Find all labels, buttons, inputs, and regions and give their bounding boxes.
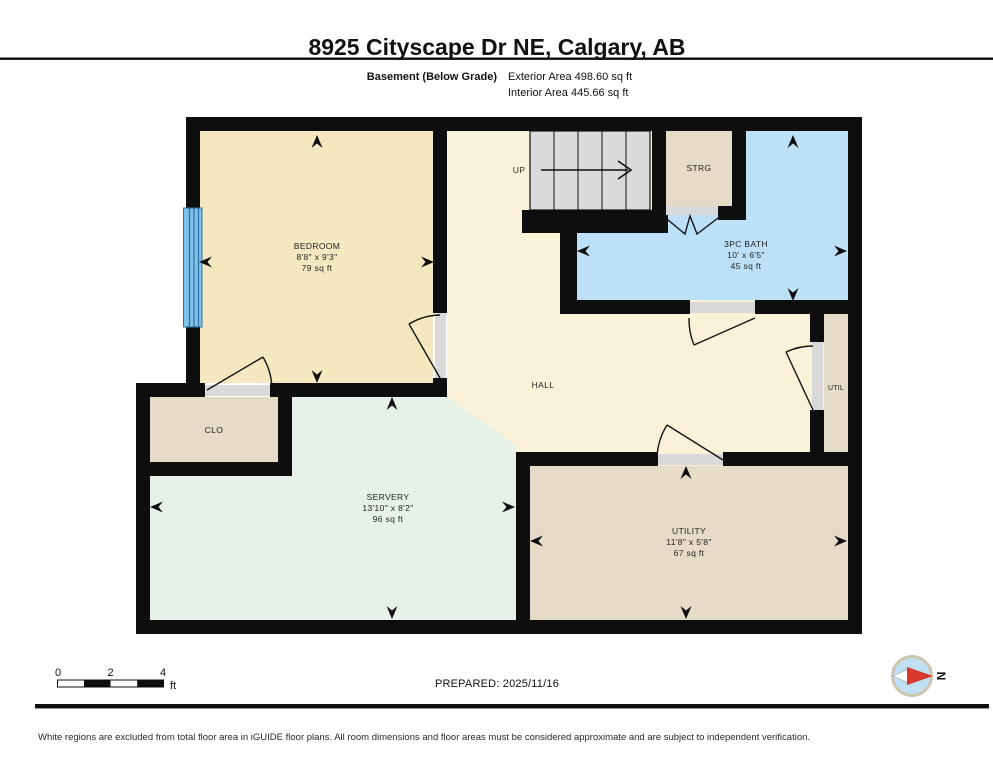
servery-name: SERVERY: [367, 492, 410, 502]
bedroom-area: 79 sq ft: [302, 263, 333, 273]
bath-area: 45 sq ft: [731, 261, 762, 271]
interior-area: Interior Area 445.66 sq ft: [508, 87, 628, 99]
footer-divider: [35, 704, 989, 708]
stairs-up-label: UP: [513, 165, 526, 175]
compass-icon: N: [893, 657, 949, 696]
prepared-date: PREPARED: 2025/11/16: [435, 678, 559, 690]
floorplan-canvas: 8925 Cityscape Dr NE, Calgary, AB Baseme…: [0, 0, 993, 768]
scale-bar: 0 2 4 ft: [55, 667, 176, 692]
header-divider: [0, 58, 993, 60]
util-name: UTIL: [828, 385, 844, 392]
bedroom-dims: 8'8" x 9'3": [296, 252, 337, 262]
strg-name: STRG: [686, 163, 711, 173]
compass-north-label: N: [934, 672, 948, 681]
floorplan-page: 8925 Cityscape Dr NE, Calgary, AB Baseme…: [0, 0, 993, 768]
room-util-fill: [824, 314, 848, 452]
scale-seg-2: [137, 680, 163, 687]
window: [184, 208, 203, 327]
disclaimer-text: White regions are excluded from total fl…: [38, 732, 810, 743]
bedroom-name: BEDROOM: [294, 241, 340, 251]
exterior-area: Exterior Area 498.60 sq ft: [508, 71, 632, 83]
bath-name: 3PC BATH: [724, 239, 768, 249]
scale-unit: ft: [170, 680, 176, 692]
scale-start: 0: [55, 667, 61, 679]
servery-area: 96 sq ft: [373, 514, 404, 524]
scale-end: 4: [160, 667, 166, 679]
scale-seg-1: [84, 680, 111, 687]
utility-dims: 11'8" x 5'8": [666, 537, 711, 547]
page-title: 8925 Cityscape Dr NE, Calgary, AB: [308, 34, 685, 60]
clo-name: CLO: [205, 425, 224, 435]
hall-name: HALL: [532, 380, 555, 390]
floor-label: Basement (Below Grade): [367, 71, 498, 83]
scale-mid: 2: [107, 667, 113, 679]
utility-name: UTILITY: [672, 526, 706, 536]
bath-dims: 10' x 6'5": [727, 250, 765, 260]
stairs: UP: [513, 131, 650, 210]
servery-dims: 13'10" x 8'2": [362, 503, 413, 513]
utility-area: 67 sq ft: [674, 548, 705, 558]
